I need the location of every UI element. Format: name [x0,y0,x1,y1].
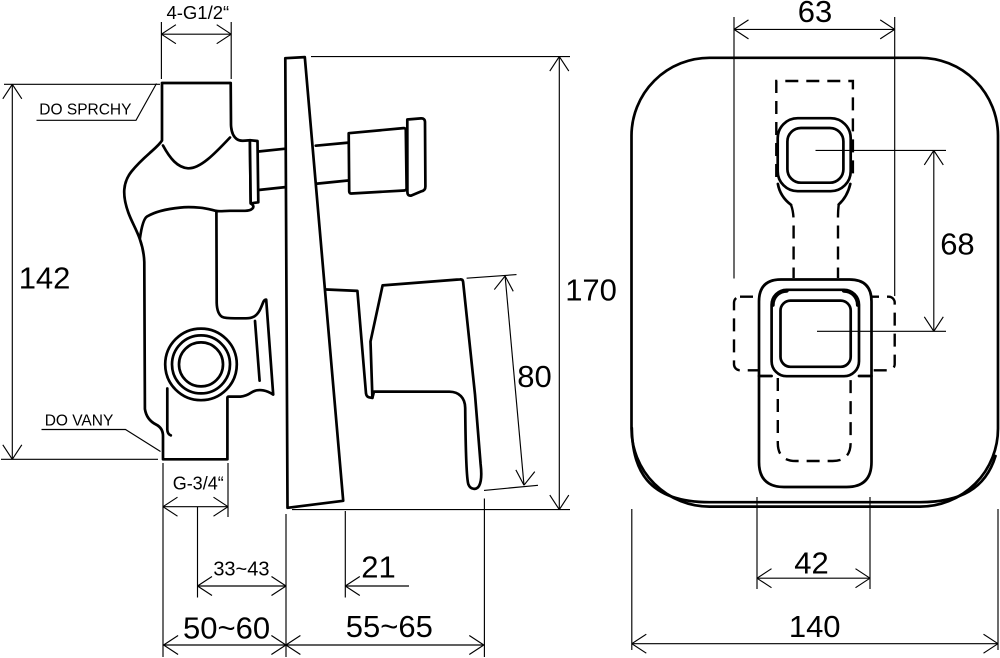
svg-text:DO SPRCHY: DO SPRCHY [39,102,131,119]
svg-text:42: 42 [794,545,828,580]
svg-text:33~43: 33~43 [213,558,269,580]
svg-text:50~60: 50~60 [183,610,270,645]
svg-text:80: 80 [517,359,551,394]
svg-text:55~65: 55~65 [346,609,433,644]
svg-text:140: 140 [789,609,841,644]
svg-text:DO VANY: DO VANY [45,413,114,430]
svg-text:21: 21 [361,550,395,585]
svg-text:63: 63 [798,0,832,29]
svg-text:142: 142 [19,260,71,295]
svg-text:68: 68 [940,226,974,261]
svg-text:4-G1/2“: 4-G1/2“ [166,2,229,23]
svg-text:G-3/4“: G-3/4“ [173,474,224,494]
svg-text:170: 170 [565,273,617,308]
